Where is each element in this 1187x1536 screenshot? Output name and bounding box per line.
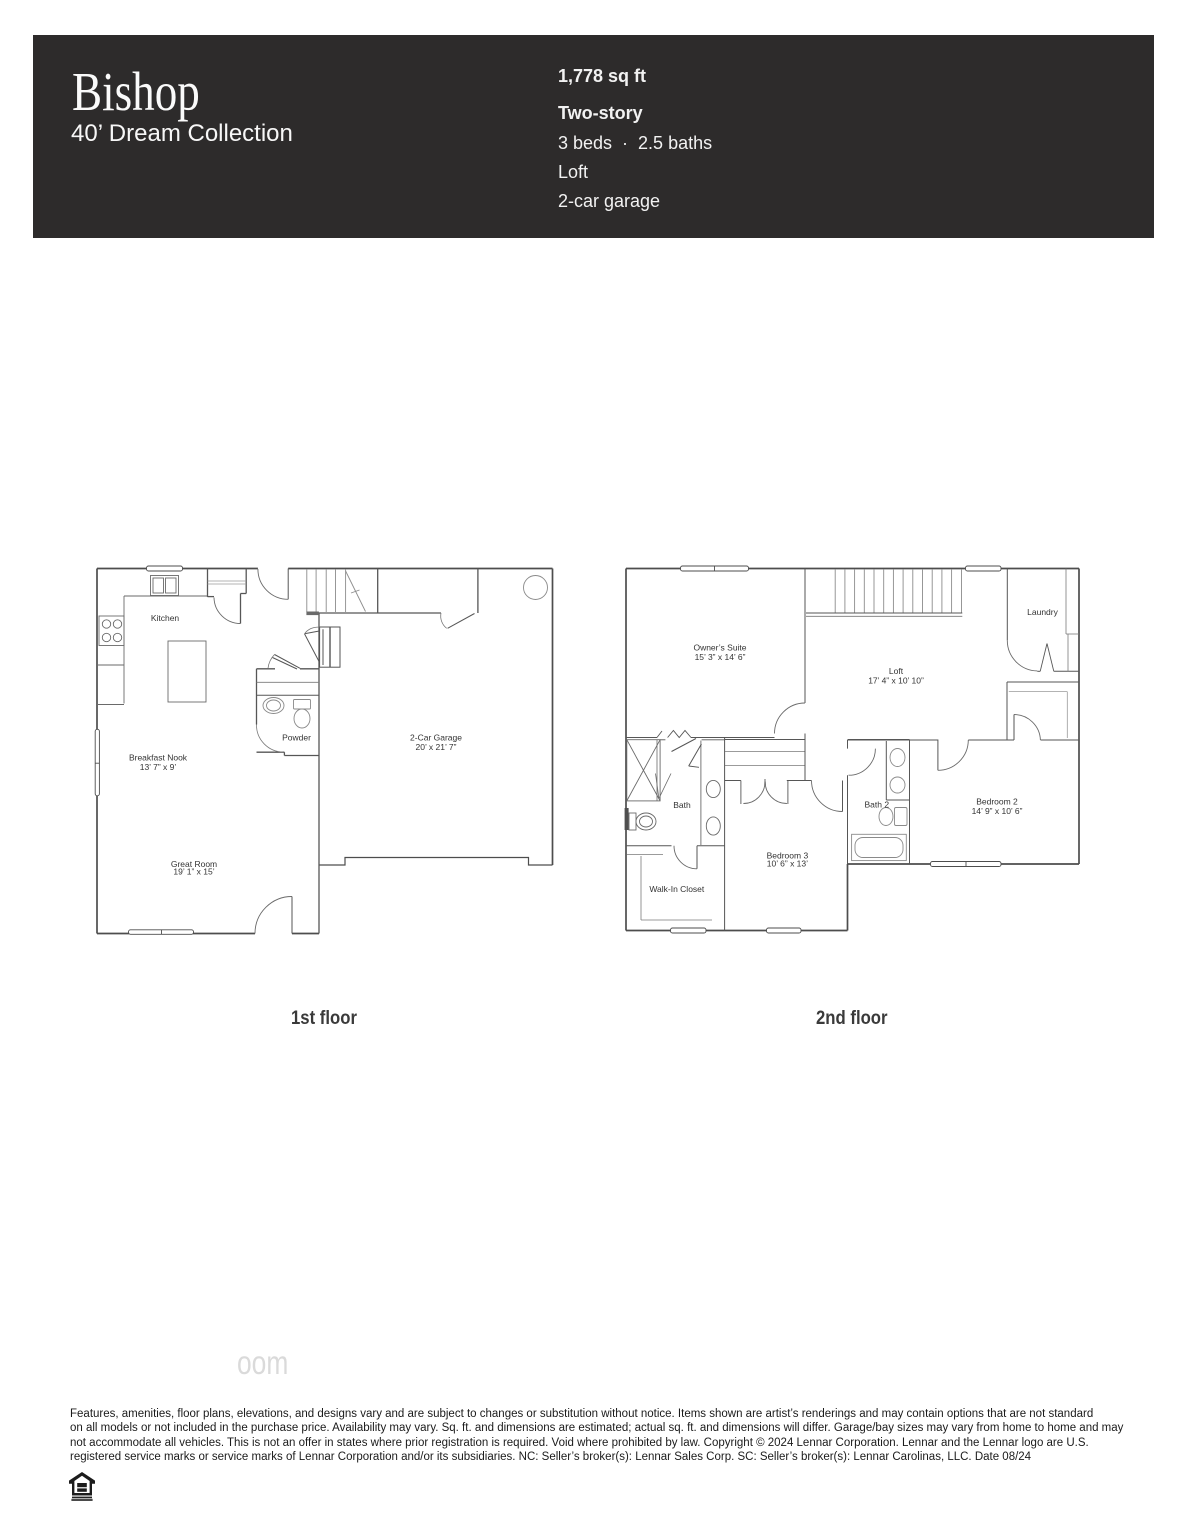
svg-text:Laundry: Laundry [1027,607,1058,617]
svg-text:2-Car Garage: 2-Car Garage [410,733,462,743]
svg-text:Breakfast Nook: Breakfast Nook [129,753,188,763]
svg-text:Bath: Bath [673,800,691,810]
svg-text:20’ x 21’ 7”: 20’ x 21’ 7” [416,742,457,752]
svg-text:17’ 4” x 10’ 10”: 17’ 4” x 10’ 10” [868,676,924,686]
svg-text:Walk-In Closet: Walk-In Closet [649,884,705,894]
svg-text:14’ 9” x 10’ 6”: 14’ 9” x 10’ 6” [972,806,1023,816]
svg-text:10’ 6” x 13’: 10’ 6” x 13’ [767,859,808,869]
svg-text:Owner’s Suite: Owner’s Suite [693,643,746,653]
svg-text:Kitchen: Kitchen [151,613,180,623]
svg-text:Powder: Powder [282,733,311,743]
svg-text:19’ 1” x 15’: 19’ 1” x 15’ [173,867,214,877]
svg-text:15’ 3” x 14’ 6”: 15’ 3” x 14’ 6” [695,652,746,662]
svg-text:Loft: Loft [889,666,904,676]
svg-text:Bedroom 2: Bedroom 2 [976,797,1018,807]
svg-text:13’ 7” x 9’: 13’ 7” x 9’ [140,762,177,772]
svg-text:Bath 2: Bath 2 [865,800,890,810]
